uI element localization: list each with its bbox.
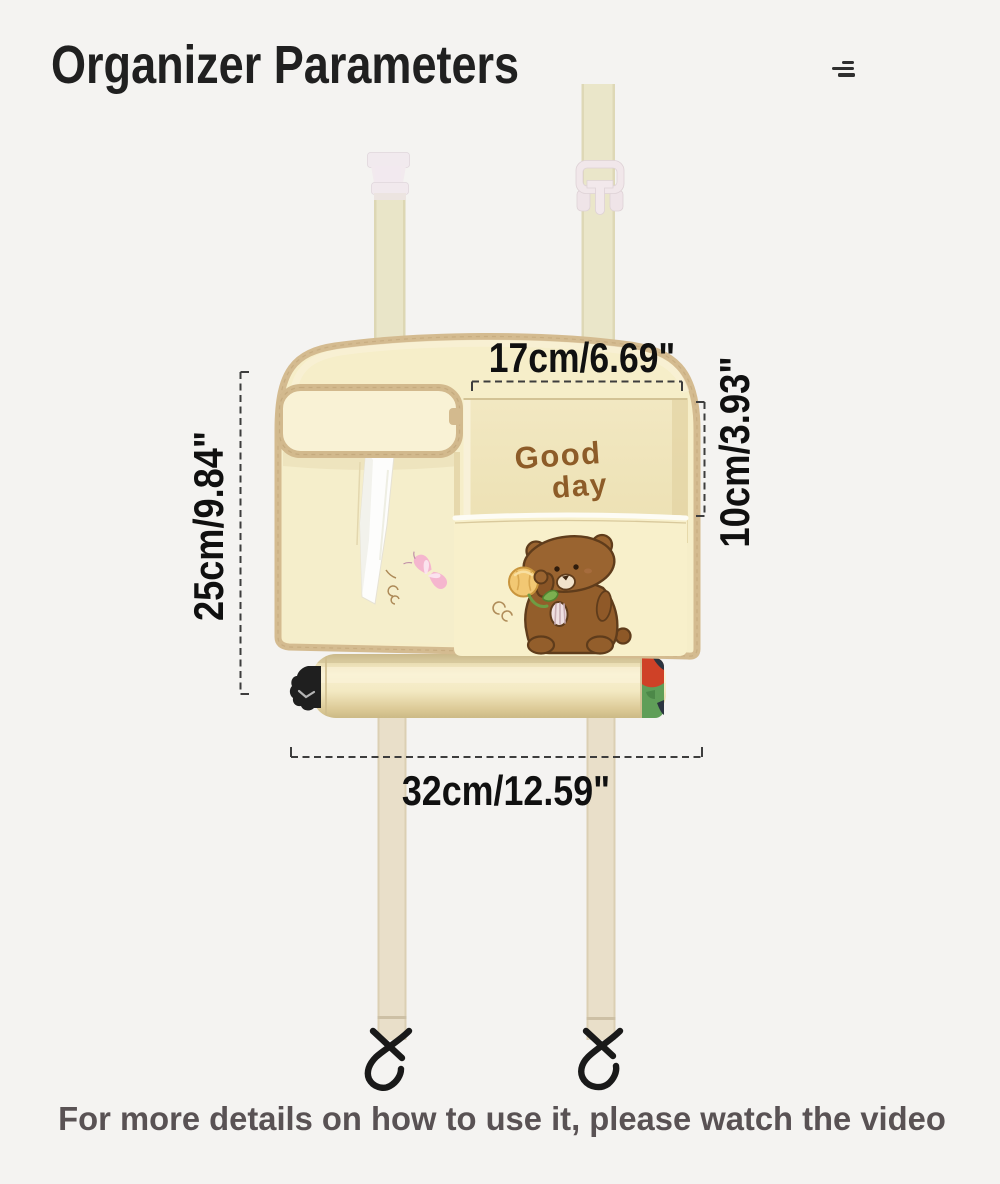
svg-text:day: day	[551, 468, 609, 505]
